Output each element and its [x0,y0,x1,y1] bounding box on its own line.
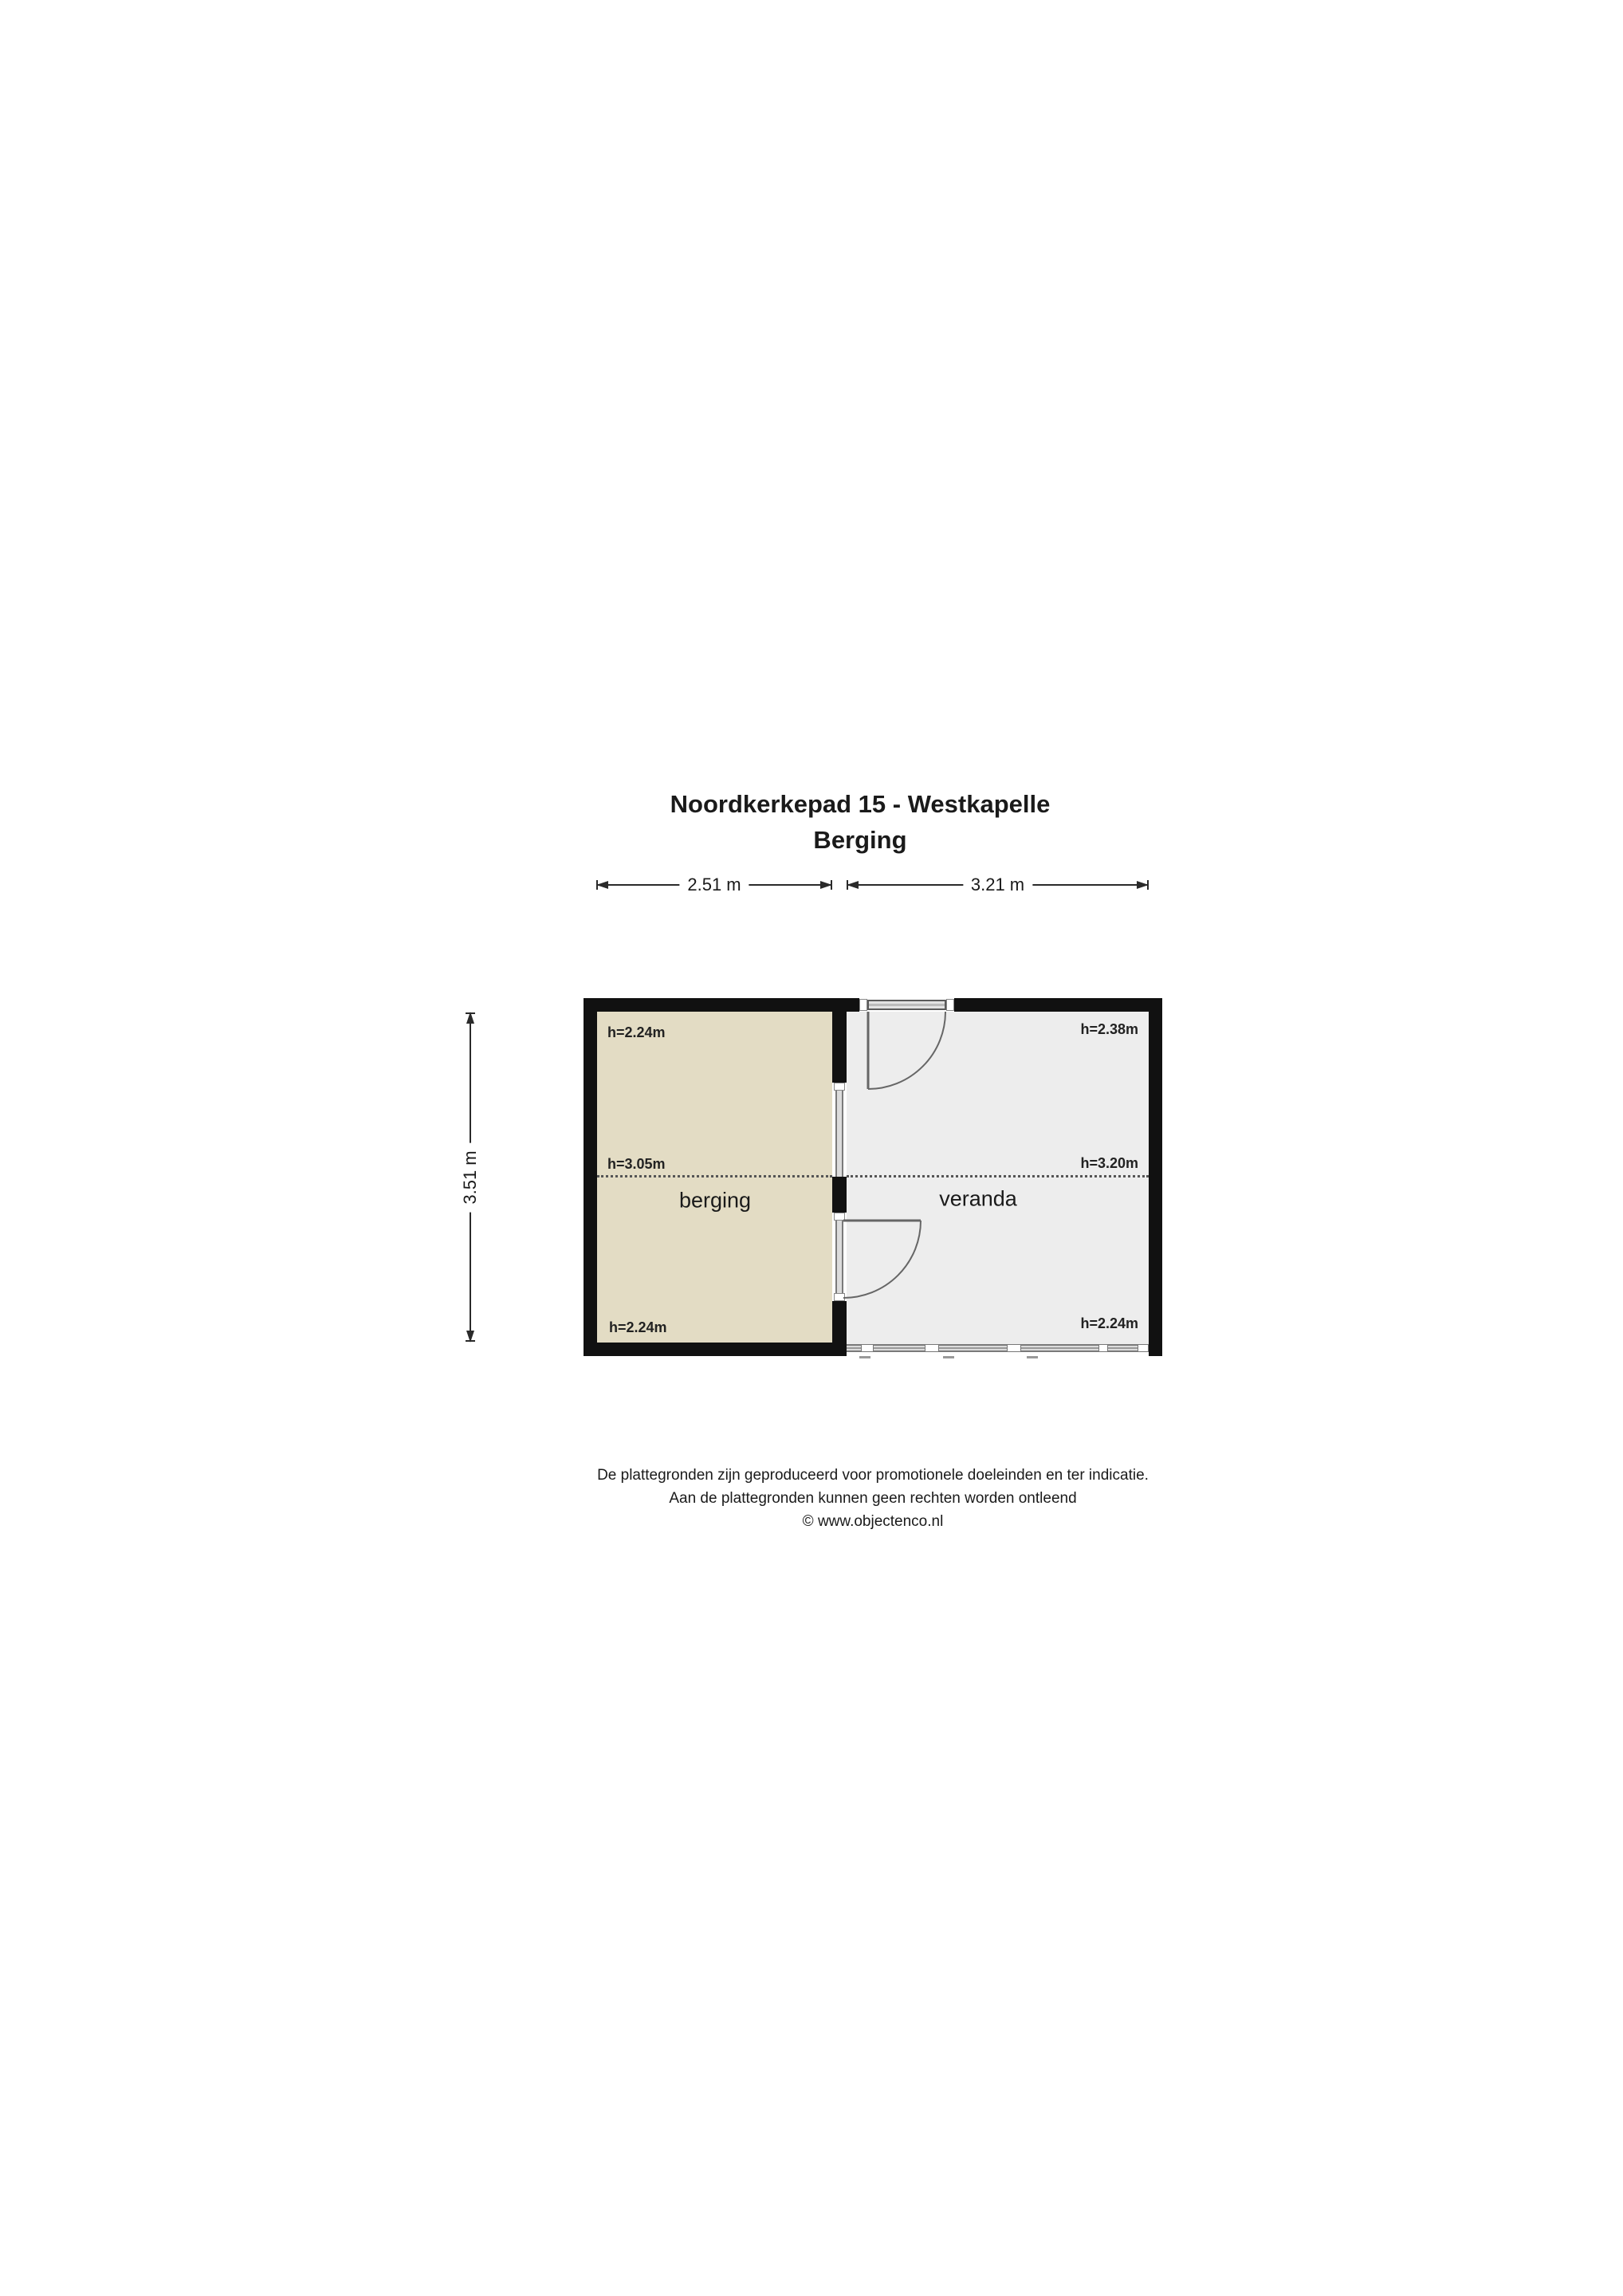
dimension-top-berging: 2.51 m [596,879,832,891]
threshold-mark [859,1356,870,1358]
arrow-left-icon [847,881,859,889]
room-veranda-floor [847,1012,1149,1344]
height-label-veranda-bottom: h=2.24m [1080,1315,1138,1331]
title-line-address: Noordkerkepad 15 - Westkapelle [670,786,1051,822]
window-post [1138,1344,1149,1352]
partition-glazing [835,1091,843,1177]
arrow-down-icon [466,1331,474,1343]
disclaimer-line-2: Aan de plattegronden kunnen geen rechten… [597,1487,1149,1510]
window-post [1098,1344,1108,1352]
page-title: Noordkerkepad 15 - Westkapelle Berging [670,786,1051,858]
partition-wall-middle [832,1177,847,1213]
disclaimer-line-1: De plattegronden zijn geproduceerd voor … [597,1464,1149,1487]
dimension-top-veranda: 3.21 m [847,879,1149,891]
arrow-left-icon [596,881,608,889]
partition-wall-upper [832,1012,847,1083]
wall-top-left [584,998,859,1012]
disclaimer-copyright: © www.objectenco.nl [597,1510,1149,1533]
floorplan-page: Noordkerkepad 15 - Westkapelle Berging 2… [0,0,1623,2296]
ceiling-divider-veranda [847,1175,1149,1177]
door-jamb [946,999,954,1011]
wall-right [1149,998,1162,1356]
dimension-label-berging-width: 2.51 m [679,875,749,895]
room-label-berging: berging [679,1189,751,1213]
arrow-right-icon [820,881,832,889]
threshold-mark [943,1356,954,1358]
window-post [861,1344,874,1352]
wall-top-right [954,998,1162,1012]
door-jamb [834,1293,845,1301]
height-label-veranda-middle: h=3.20m [1080,1155,1138,1171]
dimension-label-total-depth: 3.51 m [460,1142,481,1212]
window-post [925,1344,939,1352]
threshold-mark [1027,1356,1038,1358]
wall-left [584,998,597,1356]
door-jamb [834,1213,845,1221]
ceiling-divider-berging [597,1175,832,1177]
height-label-berging-middle: h=3.05m [607,1156,666,1172]
door-panel-glass [869,1004,945,1006]
dimension-label-veranda-width: 3.21 m [963,875,1032,895]
wall-bottom-berging [584,1343,847,1356]
dimension-left-depth: 3.51 m [464,1012,477,1343]
partition-door-opening [835,1221,843,1293]
height-label-veranda-top: h=2.38m [1080,1021,1138,1037]
partition-wall-lower [832,1301,847,1356]
title-line-floor: Berging [670,822,1051,858]
height-label-berging-top: h=2.24m [607,1024,666,1040]
door-jamb [859,999,867,1011]
entrance-door-panel [867,1000,946,1010]
room-label-veranda: veranda [939,1187,1017,1212]
arrow-up-icon [466,1012,474,1024]
door-jamb [834,1083,845,1091]
window-post [1007,1344,1021,1352]
height-label-berging-bottom: h=2.24m [609,1319,667,1335]
arrow-right-icon [1137,881,1149,889]
disclaimer: De plattegronden zijn geproduceerd voor … [597,1464,1149,1533]
